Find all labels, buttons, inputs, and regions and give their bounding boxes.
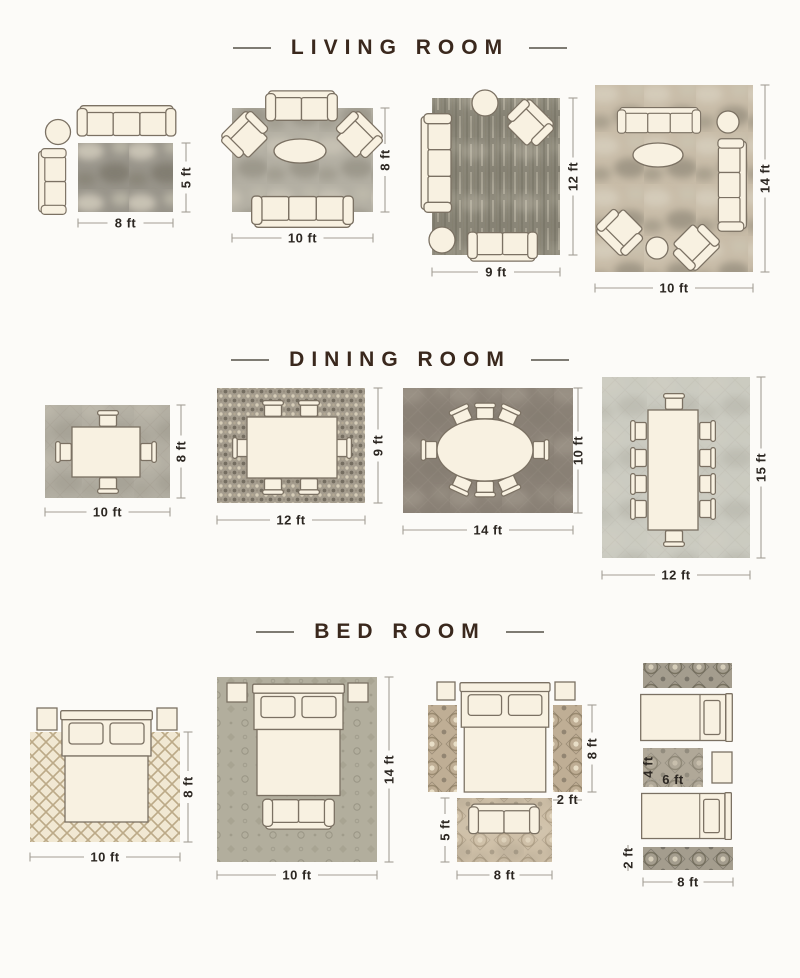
height-label: 9 ft: [371, 435, 386, 457]
dining-chair: [263, 401, 284, 417]
round-ottoman: [429, 227, 455, 253]
rug-size-guide-infographic: LIVING ROOM DINING ROOM BED ROOM 5 ft 8 …: [0, 0, 800, 978]
width-label: 10 ft: [93, 505, 122, 520]
foot-rug-width-dimension: 8 ft: [457, 868, 552, 883]
runner-width-dimension: 2 ft: [621, 845, 636, 871]
height-label: 8 ft: [174, 441, 189, 463]
dining-chair: [233, 438, 249, 459]
nightstand: [437, 682, 455, 700]
center-rug-height-label: 4 ft: [641, 756, 656, 778]
twin-bed: [642, 793, 732, 840]
foot-rug-height-label: 5 ft: [438, 819, 453, 841]
dining-chair: [700, 448, 716, 469]
dining-chair: [141, 442, 157, 463]
layout-bed-side-runners-foot-rug: 8 ft 2 ft 5 ft 8 ft: [420, 660, 600, 888]
rug-texture: [78, 143, 173, 212]
dining-table: [648, 410, 698, 530]
rug-texture: [553, 705, 582, 792]
title-dash-right: [506, 631, 544, 634]
dining-chair: [98, 411, 119, 427]
title-dash-left: [231, 359, 269, 362]
title-dash-right: [529, 47, 567, 50]
height-label: 8 ft: [181, 776, 196, 798]
dining-chair: [299, 401, 320, 417]
layout-dining-rug-10x8: 8 ft 10 ft: [30, 395, 202, 527]
dining-chair: [263, 479, 284, 495]
height-dimension: 9 ft: [371, 388, 386, 503]
height-dimension: 14 ft: [758, 85, 773, 272]
width-label: 12 ft: [276, 513, 305, 528]
section-title-bed-room: BED ROOM: [0, 620, 800, 644]
height-dimension: 8 ft: [181, 732, 196, 842]
layout-bed-rug-10x14: 14 ft 10 ft: [210, 660, 402, 888]
dining-chair: [700, 499, 716, 520]
title-dash-left: [233, 47, 271, 50]
sofa: [77, 106, 176, 136]
height-dimension: 14 ft: [382, 677, 397, 862]
runner-width-dimension: 2 ft: [553, 792, 582, 807]
runner-length-label: 8 ft: [677, 875, 699, 890]
height-label: 10 ft: [571, 436, 586, 465]
title-dash-right: [531, 359, 569, 362]
sofa: [617, 108, 700, 134]
rug-texture: [643, 663, 732, 688]
width-label: 14 ft: [473, 523, 502, 538]
side-table: [712, 752, 732, 783]
bed: [253, 684, 345, 795]
dining-table: [72, 427, 140, 477]
sofa: [718, 139, 746, 231]
round-side-table: [46, 120, 71, 145]
layout-twin-beds-runners: 4 ft 6 ft 2 ft 8 ft: [615, 655, 790, 895]
round-side-table: [717, 111, 739, 133]
dining-chair: [631, 421, 647, 442]
foot-rug-width-label: 8 ft: [494, 868, 516, 883]
sofa: [421, 114, 451, 213]
layout-living-rug-10x14: 14 ft 10 ft: [592, 80, 785, 302]
height-label: 14 ft: [758, 164, 773, 193]
dining-chair: [664, 531, 685, 547]
height-dimension: 15 ft: [754, 377, 769, 558]
width-dimension: 12 ft: [602, 568, 750, 583]
dining-chair: [533, 440, 549, 461]
dining-chair: [98, 478, 119, 494]
chaise: [39, 149, 66, 215]
width-dimension: 9 ft: [432, 265, 560, 280]
oval-dining-table: [437, 419, 533, 481]
layout-dining-rug-12x9: 9 ft 12 ft: [205, 380, 397, 537]
dining-chair: [631, 499, 647, 520]
dining-chair: [631, 448, 647, 469]
width-label: 10 ft: [659, 281, 688, 296]
width-dimension: 8 ft: [78, 216, 173, 231]
bench: [263, 799, 335, 829]
layout-dining-rug-12x15: 15 ft 12 ft: [595, 370, 787, 592]
foot-rug-height-dimension: 5 ft: [438, 798, 453, 862]
layout-living-rug-10x8: 8 ft 10 ft: [215, 80, 400, 252]
width-dimension: 12 ft: [217, 513, 365, 528]
width-label: 9 ft: [485, 265, 507, 280]
nightstand: [37, 708, 57, 730]
layout-bed-rug-10x8: 8 ft 10 ft: [25, 700, 207, 868]
height-label: 15 ft: [754, 453, 769, 482]
dining-chair: [475, 403, 496, 419]
bed: [61, 711, 153, 822]
bench: [469, 804, 540, 833]
layout-dining-rug-14x10: 10 ft 14 ft: [398, 380, 592, 546]
layout-living-rug-9x12: 12 ft 9 ft: [410, 85, 592, 287]
section-title-living-room: LIVING ROOM: [0, 36, 800, 60]
height-label: 8 ft: [378, 149, 393, 171]
title-dash-left: [256, 631, 294, 634]
width-dimension: 10 ft: [232, 231, 373, 246]
dining-chair: [700, 421, 716, 442]
dining-chair: [631, 474, 647, 495]
width-dimension: 10 ft: [217, 868, 377, 883]
width-dimension: 10 ft: [30, 850, 180, 865]
nightstand: [555, 682, 575, 700]
dining-chair: [336, 438, 352, 459]
bed: [460, 683, 550, 792]
rug-texture: [428, 705, 457, 792]
center-rug-width-label: 6 ft: [662, 772, 684, 787]
width-label: 12 ft: [661, 568, 690, 583]
runner-length-label: 8 ft: [585, 738, 600, 760]
width-label: 10 ft: [288, 231, 317, 246]
nightstand: [227, 683, 247, 702]
sofa: [252, 196, 354, 227]
runner-length-dimension: 8 ft: [643, 875, 733, 890]
nightstand: [348, 683, 368, 702]
runner-width-label: 2 ft: [621, 847, 636, 869]
height-dimension: 12 ft: [566, 98, 581, 255]
oval-coffee-table: [274, 139, 326, 163]
width-label: 10 ft: [90, 850, 119, 865]
width-dimension: 10 ft: [595, 281, 753, 296]
width-label: 8 ft: [115, 216, 137, 231]
round-side-table: [472, 90, 498, 116]
height-dimension: 8 ft: [174, 405, 189, 498]
dining-chair: [56, 442, 72, 463]
width-dimension: 14 ft: [403, 523, 573, 538]
dining-table: [247, 417, 337, 478]
dining-chair: [299, 479, 320, 495]
height-label: 5 ft: [179, 167, 194, 189]
width-label: 10 ft: [282, 868, 311, 883]
twin-bed: [641, 694, 733, 742]
height-dimension: 8 ft: [378, 108, 393, 212]
dining-room-title: DINING ROOM: [289, 348, 511, 372]
dining-chair: [700, 474, 716, 495]
round-ottoman: [646, 237, 668, 259]
dining-chair: [421, 440, 437, 461]
rug-texture: [643, 847, 733, 870]
loveseat: [468, 232, 538, 261]
height-label: 14 ft: [382, 755, 397, 784]
loveseat: [266, 91, 338, 121]
runner-length-dimension: 8 ft: [585, 705, 600, 792]
height-label: 12 ft: [566, 162, 581, 191]
height-dimension: 5 ft: [179, 143, 194, 212]
living-room-title: LIVING ROOM: [291, 36, 509, 60]
dining-chair: [475, 481, 496, 497]
runner-width-label: 2 ft: [557, 792, 579, 807]
section-title-dining-room: DINING ROOM: [0, 348, 800, 372]
bed-room-title: BED ROOM: [314, 620, 486, 644]
dining-chair: [664, 394, 685, 410]
nightstand: [157, 708, 177, 730]
oval-coffee-table: [633, 143, 683, 167]
width-dimension: 10 ft: [45, 505, 170, 520]
layout-living-rug-8x5: 5 ft 8 ft: [25, 85, 205, 237]
